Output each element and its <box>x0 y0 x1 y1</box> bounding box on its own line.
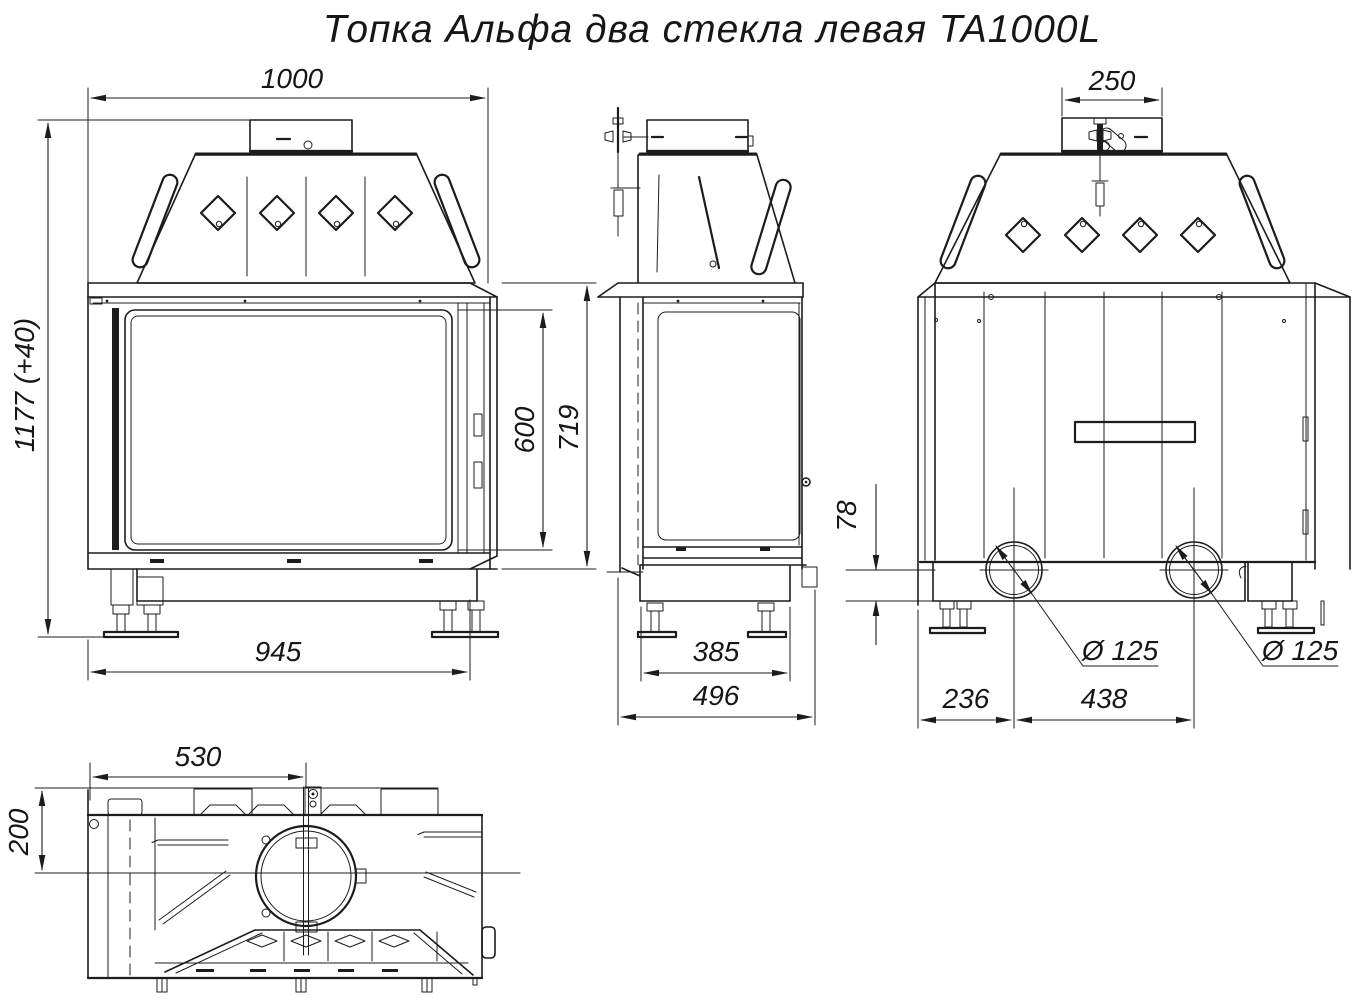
drawing-canvas: Топка Альфа два стекла левая TA1000L 100… <box>0 0 1356 1002</box>
plan-back-brackets <box>108 787 438 815</box>
dim-back-outlet-right-diameter: Ø 125 <box>1261 635 1339 666</box>
back-hood-slot-right <box>1237 174 1286 271</box>
side-damper-control <box>605 108 648 236</box>
back-feet <box>930 601 1324 633</box>
back-panel-ribs <box>984 292 1222 558</box>
dim-front-overall-height: 1177 (+40) <box>9 318 40 452</box>
back-hood-diamonds <box>1006 218 1215 252</box>
dim-back-collar-width: 250 <box>1088 65 1136 96</box>
front-flue-collar <box>250 120 352 152</box>
front-feet <box>104 569 498 637</box>
dim-back-outlet-spacing: 438 <box>1081 683 1128 714</box>
technical-drawing: Топка Альфа два стекла левая TA1000L 100… <box>0 0 1356 1002</box>
front-glass <box>125 310 452 550</box>
front-door-latch-lower <box>474 462 482 488</box>
dim-plan-flue-center-y: 200 <box>3 808 34 856</box>
side-view: 385 496 <box>598 108 817 725</box>
front-hood-slot-right <box>432 173 481 270</box>
back-panel-slot <box>1075 422 1195 442</box>
dim-side-base-depth: 385 <box>693 636 740 667</box>
plan-feet <box>157 978 477 992</box>
drawing-title: Топка Альфа два стекла левая TA1000L <box>323 8 1101 51</box>
front-hood-slot-left <box>130 173 179 270</box>
back-hood-slot-left <box>938 174 987 271</box>
dim-back-base-height: 78 <box>831 500 862 532</box>
dim-back-outlet-offset: 236 <box>942 683 990 714</box>
side-glass-panel <box>658 312 800 540</box>
back-view: 250 <box>831 65 1350 728</box>
dim-front-body-height: 719 <box>553 405 584 452</box>
dim-plan-flue-center-x: 530 <box>175 741 222 772</box>
dim-front-base-width: 945 <box>255 636 302 667</box>
back-damper-mechanism <box>1089 118 1147 216</box>
back-air-outlet-right <box>1160 488 1338 728</box>
dim-front-glass-height: 600 <box>509 406 540 453</box>
front-door-latch-upper <box>474 414 482 436</box>
back-air-outlet-left <box>980 488 1158 728</box>
side-hood-slot <box>750 178 793 276</box>
front-door-hinge-strip <box>112 308 119 550</box>
plan-view: 530 200 <box>3 741 520 992</box>
side-hood <box>638 155 795 283</box>
plan-side-tab <box>482 927 495 958</box>
plan-screw-detail <box>90 820 99 829</box>
dim-side-total-depth: 496 <box>693 680 740 711</box>
dim-back-outlet-left-diameter: Ø 125 <box>1081 635 1159 666</box>
side-feet <box>638 603 786 637</box>
back-hood <box>935 155 1290 283</box>
plan-front-slope <box>155 930 473 975</box>
back-flue-collar <box>1062 118 1162 152</box>
dim-front-overall-width: 1000 <box>261 63 324 94</box>
front-view: 1000 1177 (+40) 600 719 945 <box>9 63 596 680</box>
